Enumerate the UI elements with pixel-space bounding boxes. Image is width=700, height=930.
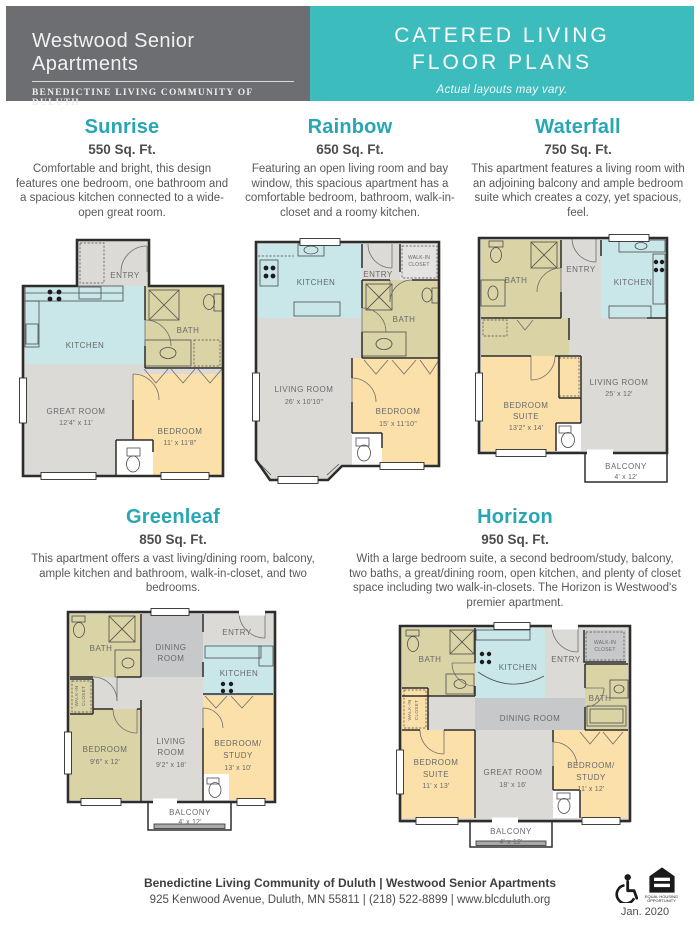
plan-description: With a large bedroom suite, a second bed…	[346, 552, 684, 610]
room-label-kitchen: KITCHEN	[613, 278, 652, 287]
room-dims-bedroom-suite: 11' x 13'	[423, 783, 450, 790]
room-label-entry: ENTRY	[110, 271, 140, 280]
plan-waterfall: Waterfall 750 Sq. Ft. This apartment fea…	[464, 116, 692, 493]
brand-subtitle: Benedictine Living Community of Duluth	[32, 88, 294, 108]
floor-plan-drawing-waterfall: BATH ENTRY KITCHEN BEDROOM SUITE 13'2" x…	[471, 228, 686, 493]
room-label-great-room: GREAT ROOM	[47, 407, 106, 416]
floor-plan-drawing-horizon: BATH KITCHEN ENTRY WALK-IN CLOSET BATH W…	[390, 618, 640, 856]
plan-horizon: Horizon 950 Sq. Ft. With a large bedroom…	[338, 506, 692, 856]
program-title-block: CATERED LIVING FLOOR PLANS Actual layout…	[310, 6, 694, 101]
brand-block: Westwood Senior Apartments Benedictine L…	[6, 6, 310, 101]
room-label-bedroom-suite-2: SUITE	[512, 412, 538, 421]
room-dims-bedroom: 9'6" x 12'	[90, 759, 120, 766]
plan-sunrise: Sunrise 550 Sq. Ft. Comfortable and brig…	[8, 116, 236, 493]
plan-title: Rainbow	[236, 116, 464, 139]
plan-description: Featuring an open living room and bay wi…	[241, 162, 459, 220]
floor-plan-horizon: BATH KITCHEN ENTRY WALK-IN CLOSET BATH W…	[338, 618, 692, 856]
room-label-kitchen: KITCHEN	[220, 669, 259, 678]
floor-plan-drawing-rainbow: KITCHEN ENTRY WALK-IN CLOSET BATH LIVING…	[240, 228, 460, 490]
room-label-bath: BATH	[393, 315, 416, 324]
room-dims-living: 26' x 10'10"	[285, 399, 324, 406]
floor-plan-drawing-greenleaf: BATH DINING ROOM ENTRY KITCHEN WALK-IN C…	[53, 604, 293, 838]
room-dims-bedroom-study: 11' x 12'	[578, 786, 605, 793]
room-label-living: LIVING ROOM	[589, 378, 648, 387]
floor-plan-sunrise: ENTRY KITCHEN BATH GREAT ROOM 12'4" x 11…	[8, 228, 236, 486]
room-label-bedroom-study-2: STUDY	[223, 751, 253, 760]
program-title-line2: FLOOR PLANS	[310, 49, 694, 76]
room-dims-living: 25' x 12'	[605, 391, 632, 398]
room-label-bedroom-suite-2: SUITE	[423, 770, 449, 779]
room-label-kitchen: KITCHEN	[66, 341, 105, 350]
room-dims-bedroom-suite: 13'2" x 14'	[508, 425, 542, 432]
room-label-bedroom: BEDROOM	[376, 407, 421, 416]
room-label-dining-2: ROOM	[158, 654, 185, 663]
plan-sqft: 550 Sq. Ft.	[8, 142, 236, 157]
program-title: CATERED LIVING FLOOR PLANS	[310, 22, 694, 77]
room-label-bedroom-suite-1: BEDROOM	[414, 758, 459, 767]
room-dims-bedroom: 15' x 11'10"	[379, 421, 417, 428]
room-label-bedroom: BEDROOM	[83, 745, 128, 754]
room-label-bath-1: BATH	[419, 655, 442, 664]
room-label-walk-in-2: CLOSET	[408, 262, 429, 268]
room-label-balcony: BALCONY	[169, 808, 211, 817]
room-dims-balcony: 4' x 12'	[499, 839, 522, 846]
room-label-dining: DINING ROOM	[500, 714, 561, 723]
header: Westwood Senior Apartments Benedictine L…	[6, 6, 694, 101]
plan-description: This apartment offers a vast living/dini…	[22, 552, 324, 596]
room-label-balcony: BALCONY	[490, 827, 532, 836]
plan-rainbow: Rainbow 650 Sq. Ft. Featuring an open li…	[236, 116, 464, 493]
room-label-walk-in-right-1: WALK-IN	[594, 640, 616, 646]
room-label-bath-2: BATH	[589, 694, 612, 703]
room-label-bedroom-suite-1: BEDROOM	[503, 401, 548, 410]
room-dims-balcony: 4' x 12'	[178, 819, 201, 826]
room-label-great-room: GREAT ROOM	[484, 768, 543, 777]
disclaimer: Actual layouts may vary.	[310, 84, 694, 96]
room-label-living-2: ROOM	[158, 748, 185, 757]
plan-description: This apartment features a living room wi…	[469, 162, 687, 220]
floor-plan-rainbow: KITCHEN ENTRY WALK-IN CLOSET BATH LIVING…	[236, 228, 464, 490]
wheelchair-accessible-icon	[612, 873, 638, 903]
room-dims-living: 9'2" x 18'	[156, 762, 186, 769]
room-dims-great-room: 12'4" x 11'	[59, 420, 93, 427]
plans-row-2: Greenleaf 850 Sq. Ft. This apartment off…	[8, 506, 692, 856]
brand-title: Westwood Senior Apartments	[32, 30, 294, 82]
room-dims-balcony: 4' x 12'	[614, 474, 637, 481]
room-label-entry: ENTRY	[363, 270, 393, 279]
room-label-kitchen: KITCHEN	[499, 663, 538, 672]
plans-row-1: Sunrise 550 Sq. Ft. Comfortable and brig…	[8, 116, 692, 493]
room-label-walk-in-1: WALK-IN	[408, 255, 430, 261]
equal-housing-label: EQUAL HOUSING OPPORTUNITY	[645, 895, 679, 903]
room-label-entry: ENTRY	[222, 628, 252, 637]
footer-line2: 925 Kenwood Avenue, Duluth, MN 55811 | (…	[0, 894, 700, 906]
room-label-entry: ENTRY	[566, 265, 596, 274]
room-label-bath: BATH	[504, 276, 527, 285]
plan-title: Horizon	[338, 506, 692, 529]
room-label-bedroom-study-1: BEDROOM/	[214, 739, 262, 748]
plan-sqft: 850 Sq. Ft.	[8, 532, 338, 547]
program-title-line1: CATERED LIVING	[310, 22, 694, 49]
room-label-dining-1: DINING	[156, 643, 187, 652]
footer-date: Jan. 2020	[602, 906, 688, 918]
room-dims-bedroom-study: 13' x 10'	[224, 765, 251, 772]
room-label-walk-in-1: WALK-IN	[74, 685, 79, 706]
room-label-balcony: BALCONY	[605, 462, 647, 471]
plan-greenleaf: Greenleaf 850 Sq. Ft. This apartment off…	[8, 506, 338, 856]
plan-sqft: 750 Sq. Ft.	[464, 142, 692, 157]
plan-title: Greenleaf	[8, 506, 338, 529]
room-label-kitchen: KITCHEN	[297, 278, 336, 287]
plan-sqft: 650 Sq. Ft.	[236, 142, 464, 157]
brochure-page: Westwood Senior Apartments Benedictine L…	[0, 0, 700, 930]
room-label-bath: BATH	[90, 644, 113, 653]
room-label-bedroom: BEDROOM	[158, 427, 203, 436]
footer-icons: EQUAL HOUSING OPPORTUNITY Jan. 2020	[602, 866, 688, 918]
floor-plan-greenleaf: BATH DINING ROOM ENTRY KITCHEN WALK-IN C…	[8, 604, 338, 838]
plan-title: Waterfall	[464, 116, 692, 139]
plan-description: Comfortable and bright, this design feat…	[13, 162, 231, 220]
equal-housing-icon	[648, 866, 676, 894]
footer-line1: Benedictine Living Community of Duluth |…	[0, 876, 700, 890]
room-label-walk-in-right-2: CLOSET	[594, 647, 615, 653]
room-label-walk-in-left-2: CLOSET	[414, 700, 419, 720]
plan-title: Sunrise	[8, 116, 236, 139]
room-dims-bedroom: 11' x 11'8"	[163, 440, 196, 447]
room-label-living: LIVING ROOM	[275, 385, 334, 394]
plan-sqft: 950 Sq. Ft.	[338, 532, 692, 547]
room-label-bath: BATH	[177, 326, 200, 335]
room-label-living-1: LIVING	[156, 737, 185, 746]
room-label-bedroom-study-2: STUDY	[576, 773, 606, 782]
room-label-entry: ENTRY	[551, 655, 581, 664]
room-dims-great-room: 18' x 16'	[499, 782, 526, 789]
floor-plan-drawing-sunrise: ENTRY KITCHEN BATH GREAT ROOM 12'4" x 11…	[13, 228, 231, 486]
room-label-walk-in-left-1: WALK-IN	[407, 700, 412, 721]
room-label-bedroom-study-1: BEDROOM/	[567, 761, 615, 770]
room-label-walk-in-2: CLOSET	[81, 686, 86, 706]
floor-plan-waterfall: BATH ENTRY KITCHEN BEDROOM SUITE 13'2" x…	[464, 228, 692, 493]
footer: Benedictine Living Community of Duluth |…	[0, 876, 700, 906]
